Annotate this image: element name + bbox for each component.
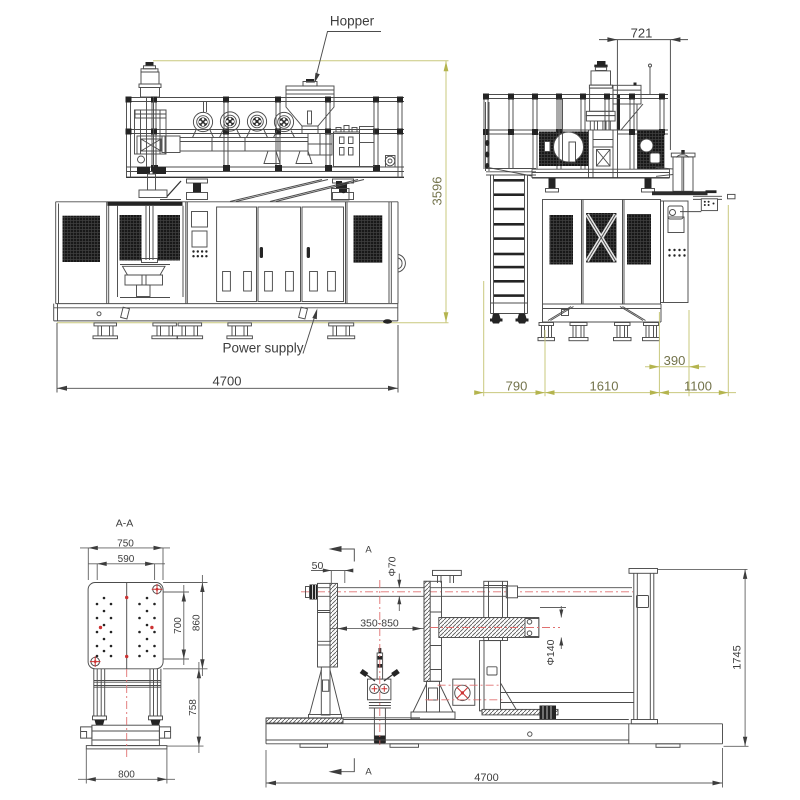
- svg-text:Hopper: Hopper: [330, 14, 375, 29]
- svg-text:3596: 3596: [430, 177, 445, 206]
- svg-text:700: 700: [173, 617, 184, 634]
- svg-text:Φ70: Φ70: [387, 556, 399, 576]
- svg-text:390: 390: [664, 353, 686, 368]
- svg-text:50: 50: [312, 560, 324, 572]
- svg-text:A: A: [365, 767, 372, 778]
- svg-text:A-A: A-A: [116, 518, 134, 530]
- svg-text:721: 721: [631, 26, 653, 41]
- svg-text:A: A: [365, 545, 372, 556]
- svg-text:4700: 4700: [213, 374, 242, 389]
- svg-text:758: 758: [188, 699, 199, 716]
- svg-text:1610: 1610: [590, 379, 619, 394]
- svg-text:860: 860: [192, 614, 203, 631]
- svg-text:590: 590: [118, 554, 135, 565]
- svg-text:1745: 1745: [731, 645, 743, 669]
- svg-text:4700: 4700: [474, 772, 498, 784]
- svg-text:750: 750: [117, 538, 134, 549]
- svg-text:790: 790: [506, 379, 528, 394]
- svg-text:800: 800: [118, 770, 135, 781]
- svg-text:Power supply: Power supply: [222, 341, 303, 356]
- svg-text:1100: 1100: [684, 379, 712, 394]
- svg-text:Φ140: Φ140: [545, 639, 557, 665]
